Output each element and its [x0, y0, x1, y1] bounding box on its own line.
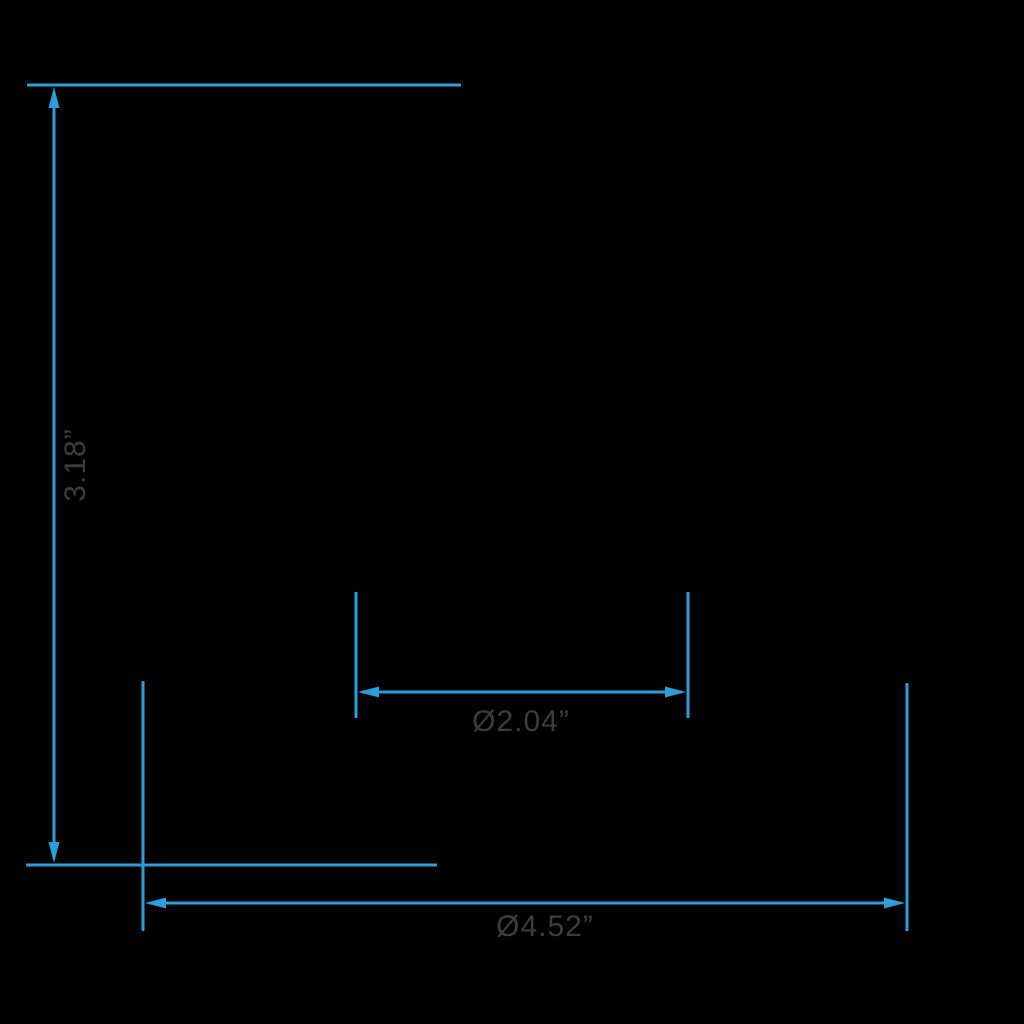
- outer-diameter-label: Ø4.52”: [496, 910, 594, 944]
- arrow-right-icon: [665, 687, 686, 698]
- arrow-down-icon: [49, 842, 60, 863]
- height-dimension-label: 3.18”: [59, 428, 93, 501]
- dimension-lines-layer: [0, 0, 1024, 1024]
- arrow-left-icon: [145, 898, 166, 909]
- inner-diameter-dimension: [356, 592, 688, 718]
- inner-diameter-label: Ø2.04”: [472, 705, 570, 739]
- arrow-left-icon: [358, 687, 379, 698]
- dimension-drawing: 3.18” Ø2.04” Ø4.52”: [0, 0, 1024, 1024]
- arrow-up-icon: [49, 87, 60, 108]
- arrow-right-icon: [884, 898, 905, 909]
